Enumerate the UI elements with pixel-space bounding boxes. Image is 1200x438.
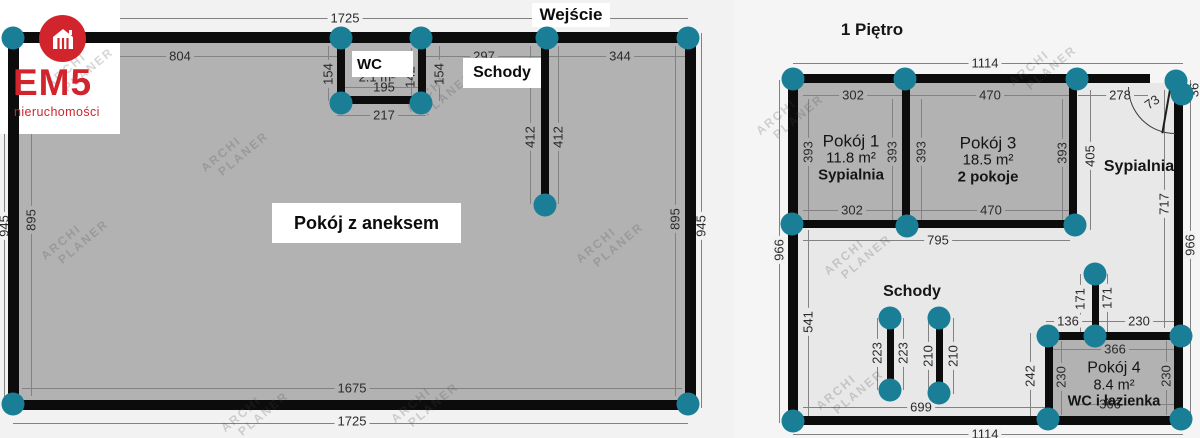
dimension-label: 344 bbox=[606, 50, 634, 63]
left-plan-wall-bottom bbox=[8, 400, 696, 410]
dimension-label: 895 bbox=[25, 206, 38, 234]
room-pokoj1-label: Pokój 1 11.8 m² Sypialnia bbox=[818, 131, 884, 184]
dimension-label: 230 bbox=[1125, 315, 1153, 328]
vertex-handle[interactable] bbox=[536, 27, 559, 50]
dimension-label: 804 bbox=[166, 50, 194, 63]
dimension-label: 966 bbox=[1184, 231, 1197, 259]
dimension-label: 412 bbox=[552, 123, 565, 151]
dimension-label: 470 bbox=[976, 89, 1004, 102]
room-pokoj3-label: Pokój 3 18.5 m² 2 pokoje bbox=[958, 133, 1019, 186]
logo-brand: EM5 bbox=[13, 64, 92, 101]
vertex-handle[interactable] bbox=[782, 68, 805, 91]
dimension-label: 154 bbox=[322, 60, 335, 88]
dimension-label: 302 bbox=[839, 89, 867, 102]
wc-label[interactable]: WC bbox=[352, 51, 413, 77]
dimension-label: 393 bbox=[1056, 139, 1069, 167]
vertex-handle[interactable] bbox=[410, 27, 433, 50]
dimension-label: 405 bbox=[1084, 142, 1097, 170]
vertex-handle[interactable] bbox=[1064, 214, 1087, 237]
vertex-handle[interactable] bbox=[1066, 68, 1089, 91]
dimension-label: 966 bbox=[773, 236, 786, 264]
right-plan-wall-bottom bbox=[788, 416, 1183, 425]
dimension-label: 366 bbox=[1101, 343, 1129, 356]
dimension-label: 393 bbox=[915, 138, 928, 166]
room-area: 18.5 m² bbox=[958, 153, 1019, 170]
dimension-label: 1725 bbox=[328, 12, 363, 25]
floor-title: 1 Piętro bbox=[841, 20, 903, 40]
dimension-label: 895 bbox=[669, 205, 682, 233]
floorplan-canvas: Wejście WC Schody Pokój z aneksem 1 Pięt… bbox=[0, 0, 1200, 438]
vertex-handle[interactable] bbox=[1170, 408, 1193, 431]
vertex-handle[interactable] bbox=[894, 68, 917, 91]
dimension-label: 541 bbox=[802, 308, 815, 336]
logo-subtitle: nieruchomości bbox=[14, 105, 100, 119]
left-plan-wall-right bbox=[685, 32, 696, 410]
vertex-handle[interactable] bbox=[1084, 325, 1107, 348]
vertex-handle[interactable] bbox=[879, 307, 902, 330]
dimension-label: 1114 bbox=[969, 428, 1002, 438]
vertex-handle[interactable] bbox=[1170, 325, 1193, 348]
dimension-label: 393 bbox=[802, 138, 815, 166]
vertex-handle[interactable] bbox=[2, 393, 25, 416]
dimension-label: 195 bbox=[370, 81, 398, 94]
dimension-label: 171 bbox=[1101, 284, 1114, 312]
room-name: Pokój 4 bbox=[1068, 360, 1161, 378]
dimension-label: 795 bbox=[924, 234, 952, 247]
dimension-label: 1114 bbox=[969, 57, 1002, 70]
vertex-handle[interactable] bbox=[896, 215, 919, 238]
room-tag: 2 pokoje bbox=[958, 170, 1019, 187]
vertex-handle[interactable] bbox=[330, 27, 353, 50]
dimension-label: 242 bbox=[1024, 362, 1037, 390]
vertex-handle[interactable] bbox=[410, 92, 433, 115]
room-with-annex-label[interactable]: Pokój z aneksem bbox=[272, 203, 461, 243]
vertex-handle[interactable] bbox=[330, 92, 353, 115]
room-area: 8.4 m² bbox=[1068, 378, 1161, 394]
dimension-label: 223 bbox=[897, 339, 910, 367]
bedroom-label-right[interactable]: Sypialnia bbox=[1104, 158, 1174, 176]
dimension-label: 210 bbox=[922, 342, 935, 370]
dimension-label: 699 bbox=[907, 401, 935, 414]
pokoj3-wall-right bbox=[1069, 74, 1077, 228]
vertex-handle[interactable] bbox=[879, 379, 902, 402]
entrance-label[interactable]: Wejście bbox=[532, 3, 610, 27]
room-name: Pokój 1 bbox=[818, 131, 884, 150]
dimension-label: 717 bbox=[1158, 190, 1171, 218]
dimension-label: 412 bbox=[524, 123, 537, 151]
house-icon bbox=[39, 15, 86, 62]
vertex-handle[interactable] bbox=[1084, 263, 1107, 286]
dimension-label: 217 bbox=[370, 109, 398, 122]
stairs-wall-stub bbox=[541, 43, 549, 205]
dimension-label: 945 bbox=[695, 212, 708, 240]
stairs-label-left[interactable]: Schody bbox=[463, 58, 541, 88]
stairs-label-right[interactable]: Schody bbox=[883, 283, 941, 301]
dimension-label: 210 bbox=[947, 342, 960, 370]
right-plan-wall-right bbox=[1174, 74, 1183, 425]
dimension-label: 302 bbox=[838, 204, 866, 217]
vertex-handle[interactable] bbox=[677, 27, 700, 50]
right-plan-wall-top bbox=[788, 74, 1150, 83]
agency-logo: EM5 nieruchomości bbox=[0, 0, 122, 134]
room-name: Pokój 3 bbox=[958, 133, 1019, 152]
dimension-label: 136 bbox=[1054, 315, 1082, 328]
room-pokoj4-label: Pokój 4 8.4 m² WC i łazienka bbox=[1068, 360, 1161, 411]
dimension-label: 393 bbox=[886, 138, 899, 166]
dimension-label: 171 bbox=[1074, 285, 1087, 313]
dimension-label: 230 bbox=[1160, 362, 1173, 390]
vertex-handle[interactable] bbox=[534, 194, 557, 217]
pokoj1-pokoj3-divider bbox=[902, 74, 910, 228]
room-area: 11.8 m² bbox=[818, 151, 884, 168]
vertex-handle[interactable] bbox=[677, 393, 700, 416]
rooms-wall-bottom bbox=[788, 220, 1080, 228]
room-tag: WC i łazienka bbox=[1068, 394, 1161, 410]
vertex-handle[interactable] bbox=[1037, 408, 1060, 431]
room-tag: Sypialnia bbox=[818, 168, 884, 185]
vertex-handle[interactable] bbox=[928, 307, 951, 330]
vertex-handle[interactable] bbox=[1171, 83, 1194, 106]
vertex-handle[interactable] bbox=[782, 410, 805, 433]
dimension-label: 470 bbox=[977, 204, 1005, 217]
dimension-label: 1725 bbox=[335, 415, 370, 428]
dimension-label: 1675 bbox=[335, 382, 370, 395]
dimension-label: 230 bbox=[1055, 363, 1068, 391]
vertex-handle[interactable] bbox=[928, 382, 951, 405]
vertex-handle[interactable] bbox=[1037, 325, 1060, 348]
pokoj4-wall-top bbox=[1045, 332, 1183, 340]
vertex-handle[interactable] bbox=[781, 213, 804, 236]
